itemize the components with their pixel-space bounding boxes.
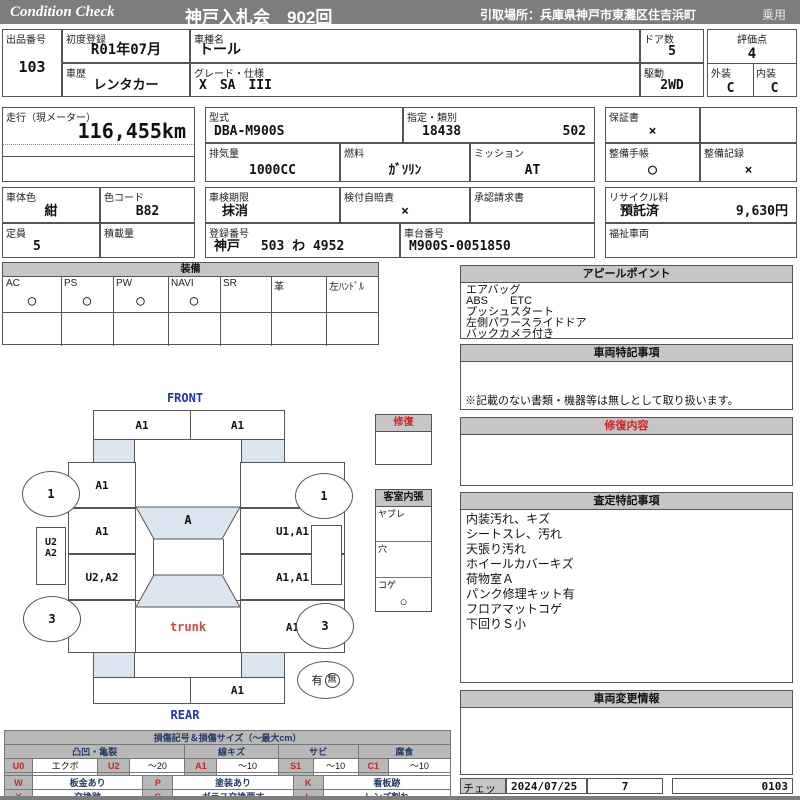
bottom-bar: [0, 796, 800, 800]
assessment-line: フロアマットコゲ: [466, 602, 787, 617]
left-sill-box: U2 A2: [36, 527, 66, 585]
exterior-label: 外装: [711, 65, 731, 80]
repair-detail-title: 修復内容: [461, 418, 792, 435]
rear-corner-left: [93, 652, 135, 678]
front-bumper-right: A1: [190, 411, 285, 439]
field-chassis-number: 車台番号 M900S-0051850: [400, 223, 595, 258]
top-bar: Condition Check 神戸入札会 902回 引取場所：兵庫県神戸市東灘…: [0, 0, 800, 24]
field-fuel: 燃料 ｶﾞｿﾘﾝ: [340, 143, 470, 182]
assessment-title: 査定特記事項: [461, 493, 792, 510]
field-color-code: 色コード B82: [100, 187, 195, 223]
field-body-color: 車体色 紺: [2, 187, 100, 223]
lot-label: 出品番号: [6, 31, 46, 46]
interior-label: 内装: [756, 65, 776, 80]
score-value: 4: [708, 46, 796, 62]
rear-bumper-left: [94, 678, 191, 703]
mileage-value: 116,455km: [78, 119, 186, 143]
change-info-section: 車両変更情報: [460, 690, 793, 775]
equipment-pw: PW ○: [113, 277, 169, 312]
field-inspection: 車検期限 抹消: [205, 187, 340, 223]
equipment-table: 装備 AC ○ PS ○ PW ○ NAVI ○ SR 革 左ﾊﾝﾄﾞﾙ: [2, 262, 379, 345]
equipment-lhd: 左ﾊﾝﾄﾞﾙ: [326, 277, 378, 312]
left-front-door-cell: A1: [68, 508, 136, 554]
field-approval: 承認請求書: [470, 187, 595, 223]
wheel-rear-right: 3: [296, 603, 354, 649]
diagram-rear-bumper: A1: [93, 677, 285, 704]
check-code-cell: 0103: [672, 778, 793, 794]
field-warranty-extra: [700, 107, 797, 143]
repair-flag-box: 修復: [375, 414, 432, 465]
lot-value: 103: [3, 58, 61, 76]
field-doors: ドア数 5: [640, 29, 704, 63]
roof-section: [153, 539, 224, 575]
field-transmission: ミッション AT: [470, 143, 595, 182]
exterior-value: C: [708, 81, 753, 96]
rear-bumper-right: A1: [190, 678, 285, 703]
field-recycle-fee: リサイクル料 預託済 9,630円: [605, 187, 797, 223]
special-notes-title: 車両特記事項: [461, 345, 792, 362]
field-warranty: 保証書 ×: [605, 107, 700, 143]
assessment-line: 内装汚れ、キズ: [466, 512, 787, 527]
bonnet-corner-right: [241, 439, 285, 463]
check-count-cell: 7: [587, 778, 663, 794]
front-bumper-left: A1: [94, 411, 191, 439]
field-grade: グレード・仕様 X SA III: [190, 63, 640, 97]
equipment-leather: 革: [271, 277, 327, 312]
spare-none-label: 無: [325, 673, 340, 688]
field-mileage: 走行（現メーター） 116,455km: [2, 107, 195, 182]
field-model-name: 車種名 トール: [190, 29, 640, 63]
check-date-cell: 2024/07/25: [506, 778, 587, 794]
diagram-front-bumper: A1 A1: [93, 410, 285, 440]
appeal-title: アピールポイント: [461, 266, 792, 283]
cabin-lining-hole: 穴: [376, 542, 431, 578]
field-jibaiseki: 検付自賠責 ×: [340, 187, 470, 223]
field-maintenance-book: 整備手帳 ○: [605, 143, 700, 182]
wheel-front-right: 1: [295, 473, 353, 519]
diagram-rear-label: REAR: [130, 708, 240, 722]
field-drive: 駆動 2WD: [640, 63, 704, 97]
usage-type: 乗用: [762, 6, 786, 23]
equipment-sr: SR: [220, 277, 272, 312]
diagram-front-label: FRONT: [130, 391, 240, 405]
field-lot-number: 出品番号 103: [2, 29, 62, 97]
interior-value: C: [753, 81, 796, 96]
field-model-code: 型式 DBA-M900S: [205, 107, 403, 143]
left-rear-door-cell: U2,A2: [68, 554, 136, 600]
score-label: 評価点: [708, 31, 796, 46]
equipment-ps: PS ○: [61, 277, 114, 312]
field-displacement: 排気量 1000CC: [205, 143, 340, 182]
special-notes-note: ※記載のない書類・機器等は無しとして取り扱います。: [465, 392, 739, 408]
change-info-title: 車両変更情報: [461, 691, 792, 708]
spare-has-label: 有: [312, 672, 323, 688]
repair-flag-title: 修復: [376, 415, 431, 432]
cabin-lining-tear: ヤブレ: [376, 507, 431, 542]
equipment-navi: NAVI ○: [168, 277, 221, 312]
field-welfare: 福祉車両: [605, 223, 797, 258]
bonnet-corner-left: [93, 439, 135, 463]
auction-title: 神戸入札会 902回: [185, 3, 332, 28]
assessment-line: ホイールカバーキズ: [466, 557, 787, 572]
wheel-front-left: 1: [22, 471, 80, 517]
field-history: 車歴 レンタカー: [62, 63, 190, 97]
cabin-lining-title: 客室内張: [376, 490, 431, 507]
cabin-lining-box: 客室内張 ヤブレ 穴 コゲ ○: [375, 489, 432, 612]
cabin-lining-burn: コゲ ○: [376, 578, 431, 613]
score-box: 評価点 4 外装 C 内装 C: [707, 29, 797, 97]
appeal-line: バックカメラ付き: [466, 329, 787, 340]
pickup-location: 引取場所：兵庫県神戸市東灘区住吉浜町: [480, 6, 696, 23]
assessment-line: 天張り汚れ: [466, 542, 787, 557]
field-registration-number: 登録番号 神戸 503 わ 4952: [205, 223, 400, 258]
field-payload: 積載量: [100, 223, 195, 258]
field-capacity: 定員 5: [2, 223, 100, 258]
right-sill-box: [311, 525, 342, 585]
repair-detail-section: 修復内容: [460, 417, 793, 486]
special-notes-section: 車両特記事項 ※記載のない書類・機器等は無しとして取り扱います。: [460, 344, 793, 410]
check-label-cell: チェック: [460, 778, 506, 794]
assessment-line: 荷物室Ａ: [466, 572, 787, 587]
field-maintenance-record: 整備記録 ×: [700, 143, 797, 182]
field-first-registration: 初度登録 R01年07月: [62, 29, 190, 63]
brand-logo: Condition Check: [10, 4, 115, 21]
assessment-line: パンク修理キット有: [466, 587, 787, 602]
rear-window-shape: [135, 574, 241, 608]
equipment-ac: AC ○: [3, 277, 62, 312]
wheel-rear-left: 3: [23, 596, 81, 642]
spare-tire-mark: 有 無: [297, 661, 354, 699]
legend-title: 損傷記号＆損傷サイズ（〜最大cm）: [5, 731, 451, 745]
field-designation: 指定・類別 18438 502: [403, 107, 595, 143]
appeal-section: アピールポイント エアバッグ ABS ETC プッシュスタート 左側パワースライ…: [460, 265, 793, 339]
windshield-label: A: [135, 513, 241, 527]
assessment-line: シートスレ、汚れ: [466, 527, 787, 542]
equipment-empty-row: [3, 313, 378, 346]
rear-corner-right: [241, 652, 285, 678]
auction-sheet: Condition Check 神戸入札会 902回 引取場所：兵庫県神戸市東灘…: [0, 0, 800, 800]
assessment-section: 査定特記事項 内装汚れ、キズ シートスレ、汚れ 天張り汚れ ホイールカバーキズ …: [460, 492, 793, 683]
equipment-title: 装備: [3, 263, 378, 277]
assessment-line: 下回りＳ小: [466, 617, 787, 632]
